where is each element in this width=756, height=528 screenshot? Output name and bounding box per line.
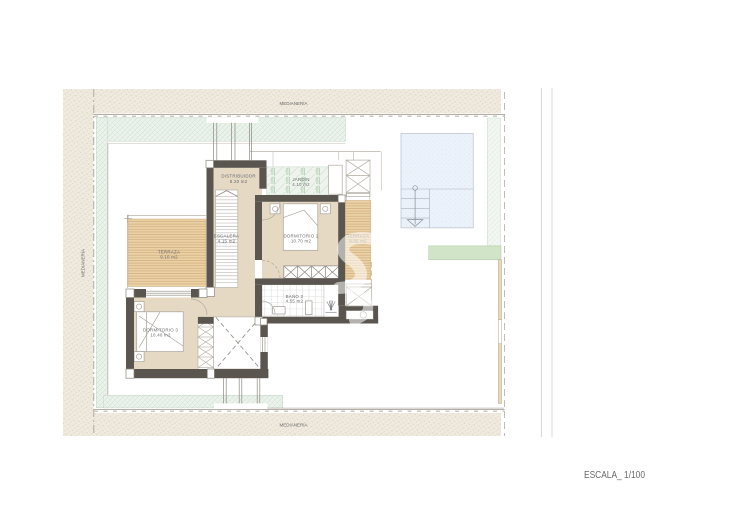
svg-text:4.10 m2: 4.10 m2 xyxy=(292,182,310,187)
svg-text:4.15 m2: 4.15 m2 xyxy=(218,239,236,244)
svg-text:MEDIANERÍA: MEDIANERÍA xyxy=(280,421,309,427)
svg-text:8.20 m2: 8.20 m2 xyxy=(230,179,248,184)
svg-text:MEDIANERÍA: MEDIANERÍA xyxy=(80,248,86,277)
svg-text:DISTRIBUIDOR: DISTRIBUIDOR xyxy=(221,174,255,179)
svg-text:9.10 m2: 9.10 m2 xyxy=(160,255,178,260)
svg-text:ESCALA_ 1/100: ESCALA_ 1/100 xyxy=(584,469,645,481)
svg-text:MEDIANERÍA: MEDIANERÍA xyxy=(280,100,309,106)
svg-text:10.70 m2: 10.70 m2 xyxy=(291,239,312,244)
svg-text:10.40 m2: 10.40 m2 xyxy=(150,333,171,338)
svg-text:4.55 m2: 4.55 m2 xyxy=(286,299,304,304)
